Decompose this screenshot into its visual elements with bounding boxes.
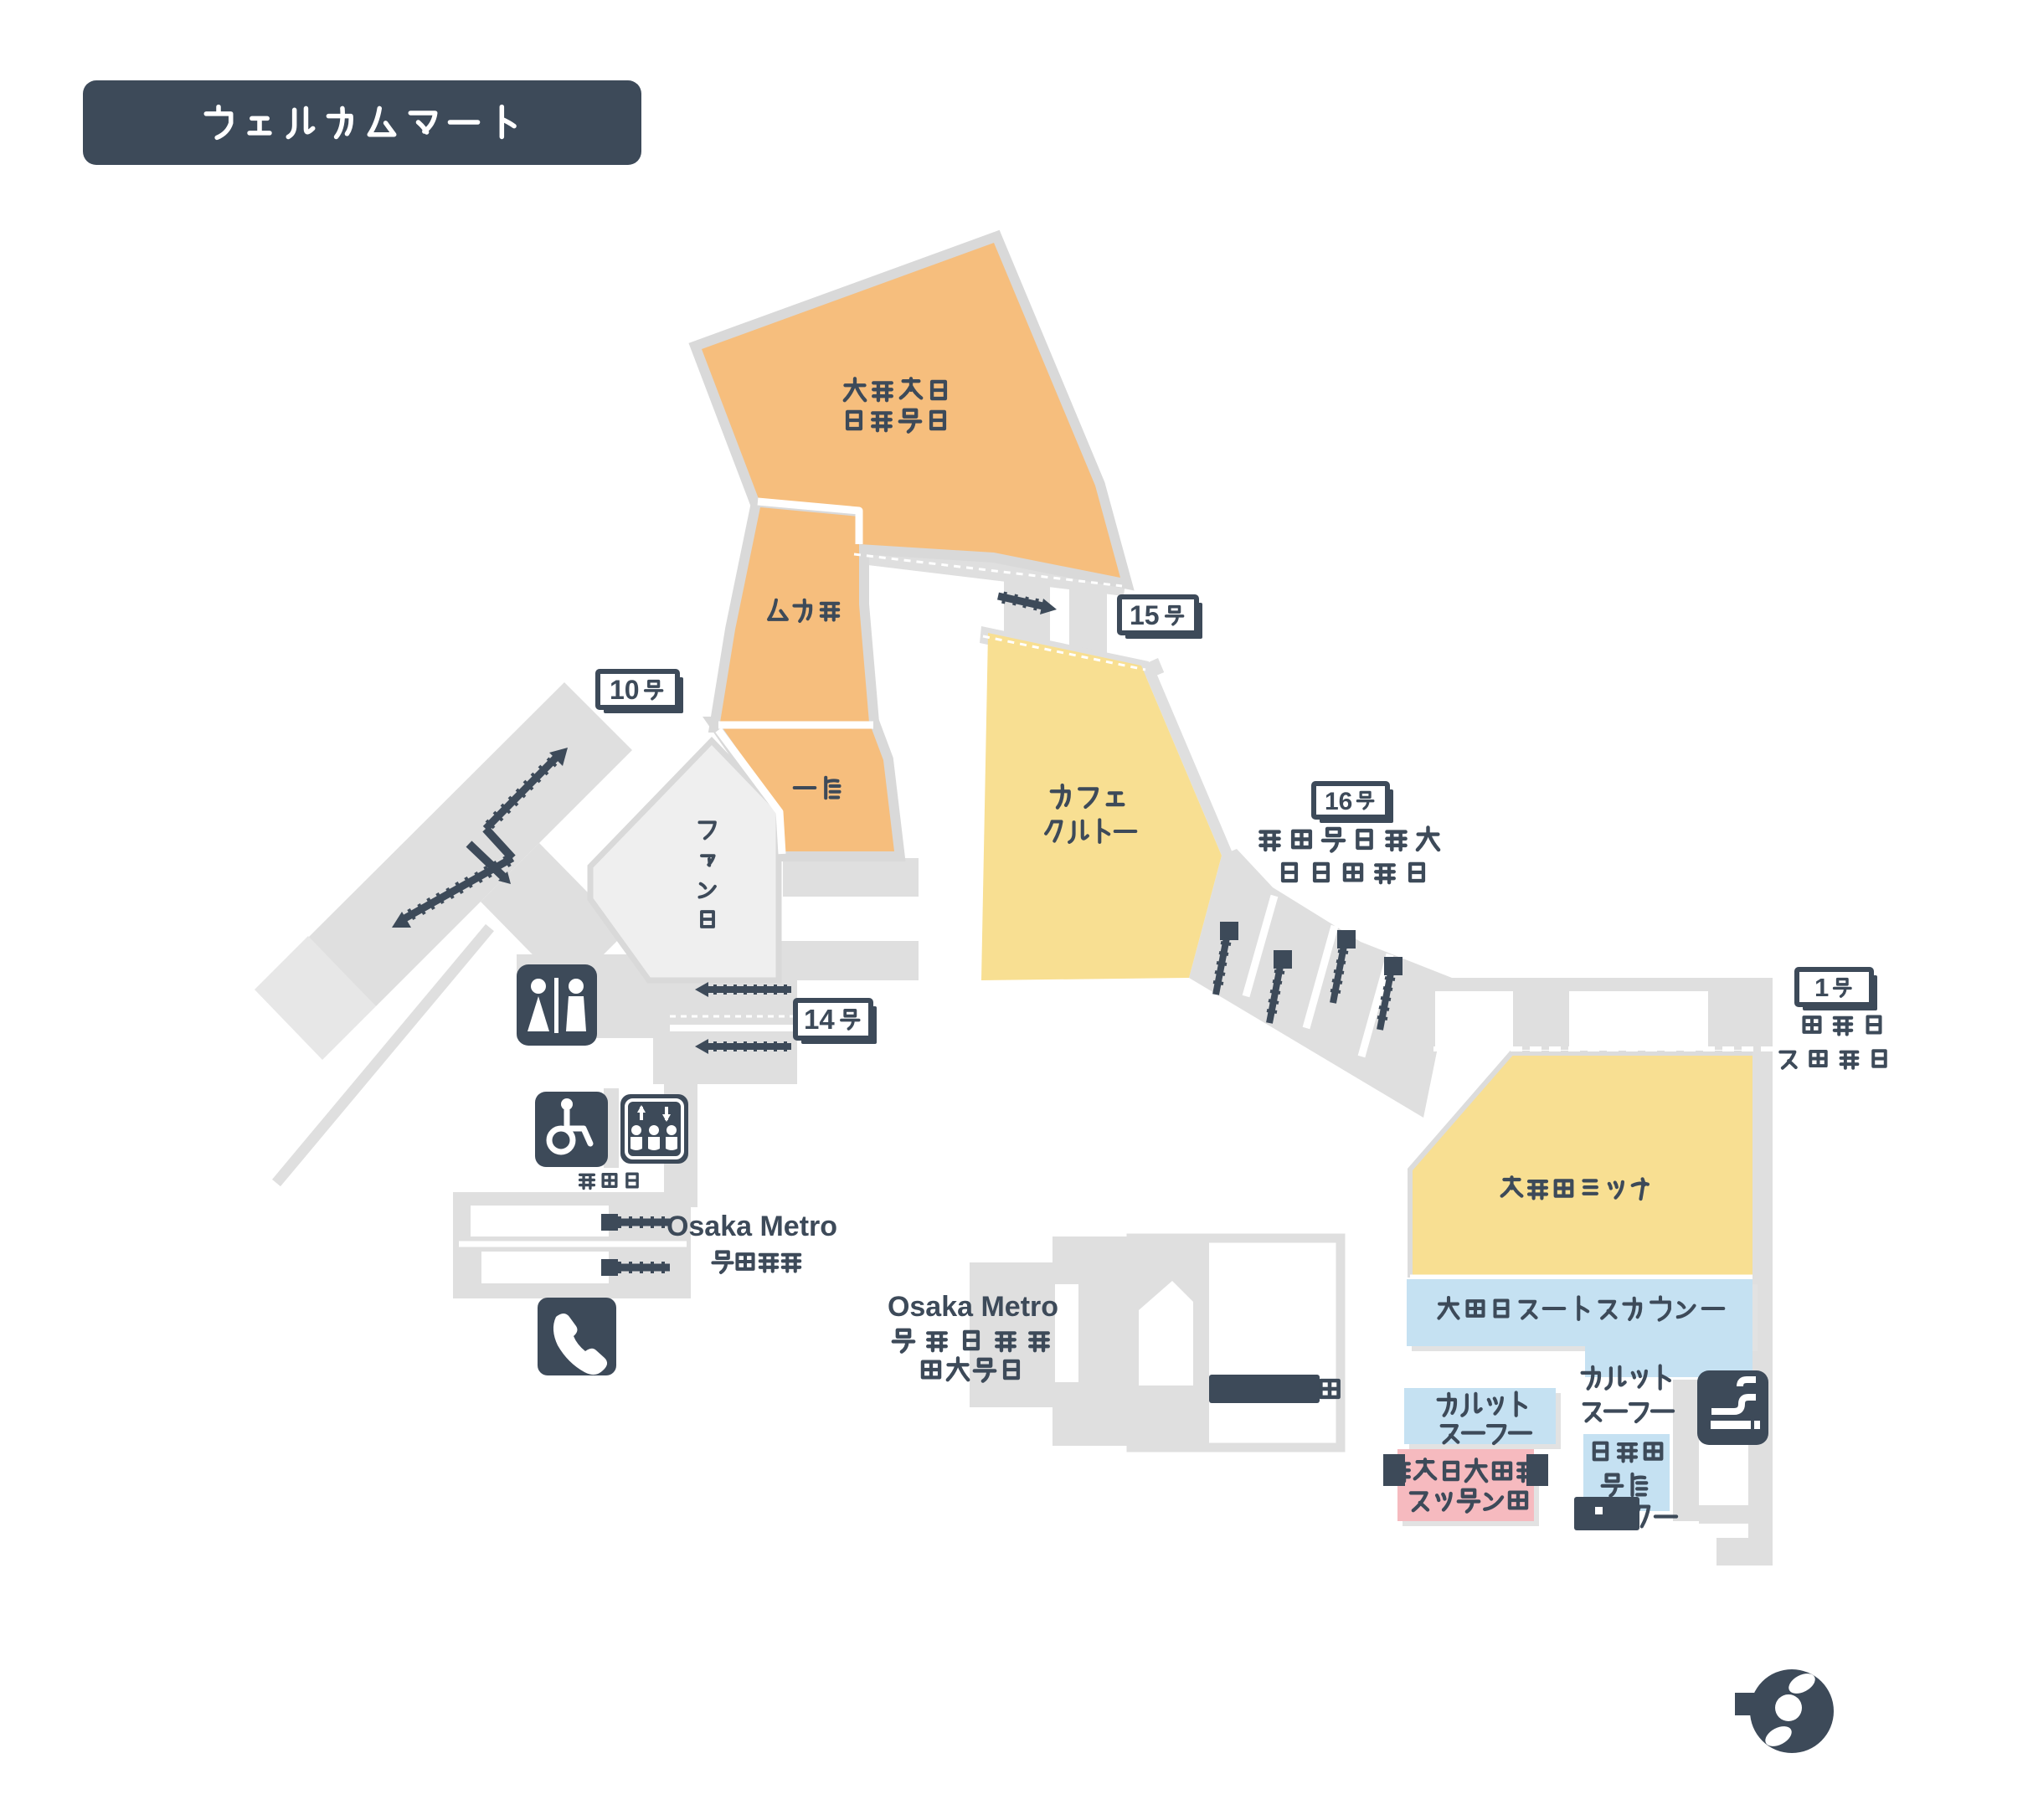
svg-text:Osaka Metro: Osaka Metro — [888, 1291, 1058, 1323]
svg-text:1: 1 — [1814, 973, 1829, 1002]
svg-text:Osaka Metro: Osaka Metro — [667, 1211, 837, 1242]
svg-text:15: 15 — [1130, 600, 1160, 630]
svg-text:14: 14 — [804, 1004, 835, 1035]
svg-text:16: 16 — [1325, 788, 1352, 815]
svg-text:10: 10 — [610, 675, 640, 705]
